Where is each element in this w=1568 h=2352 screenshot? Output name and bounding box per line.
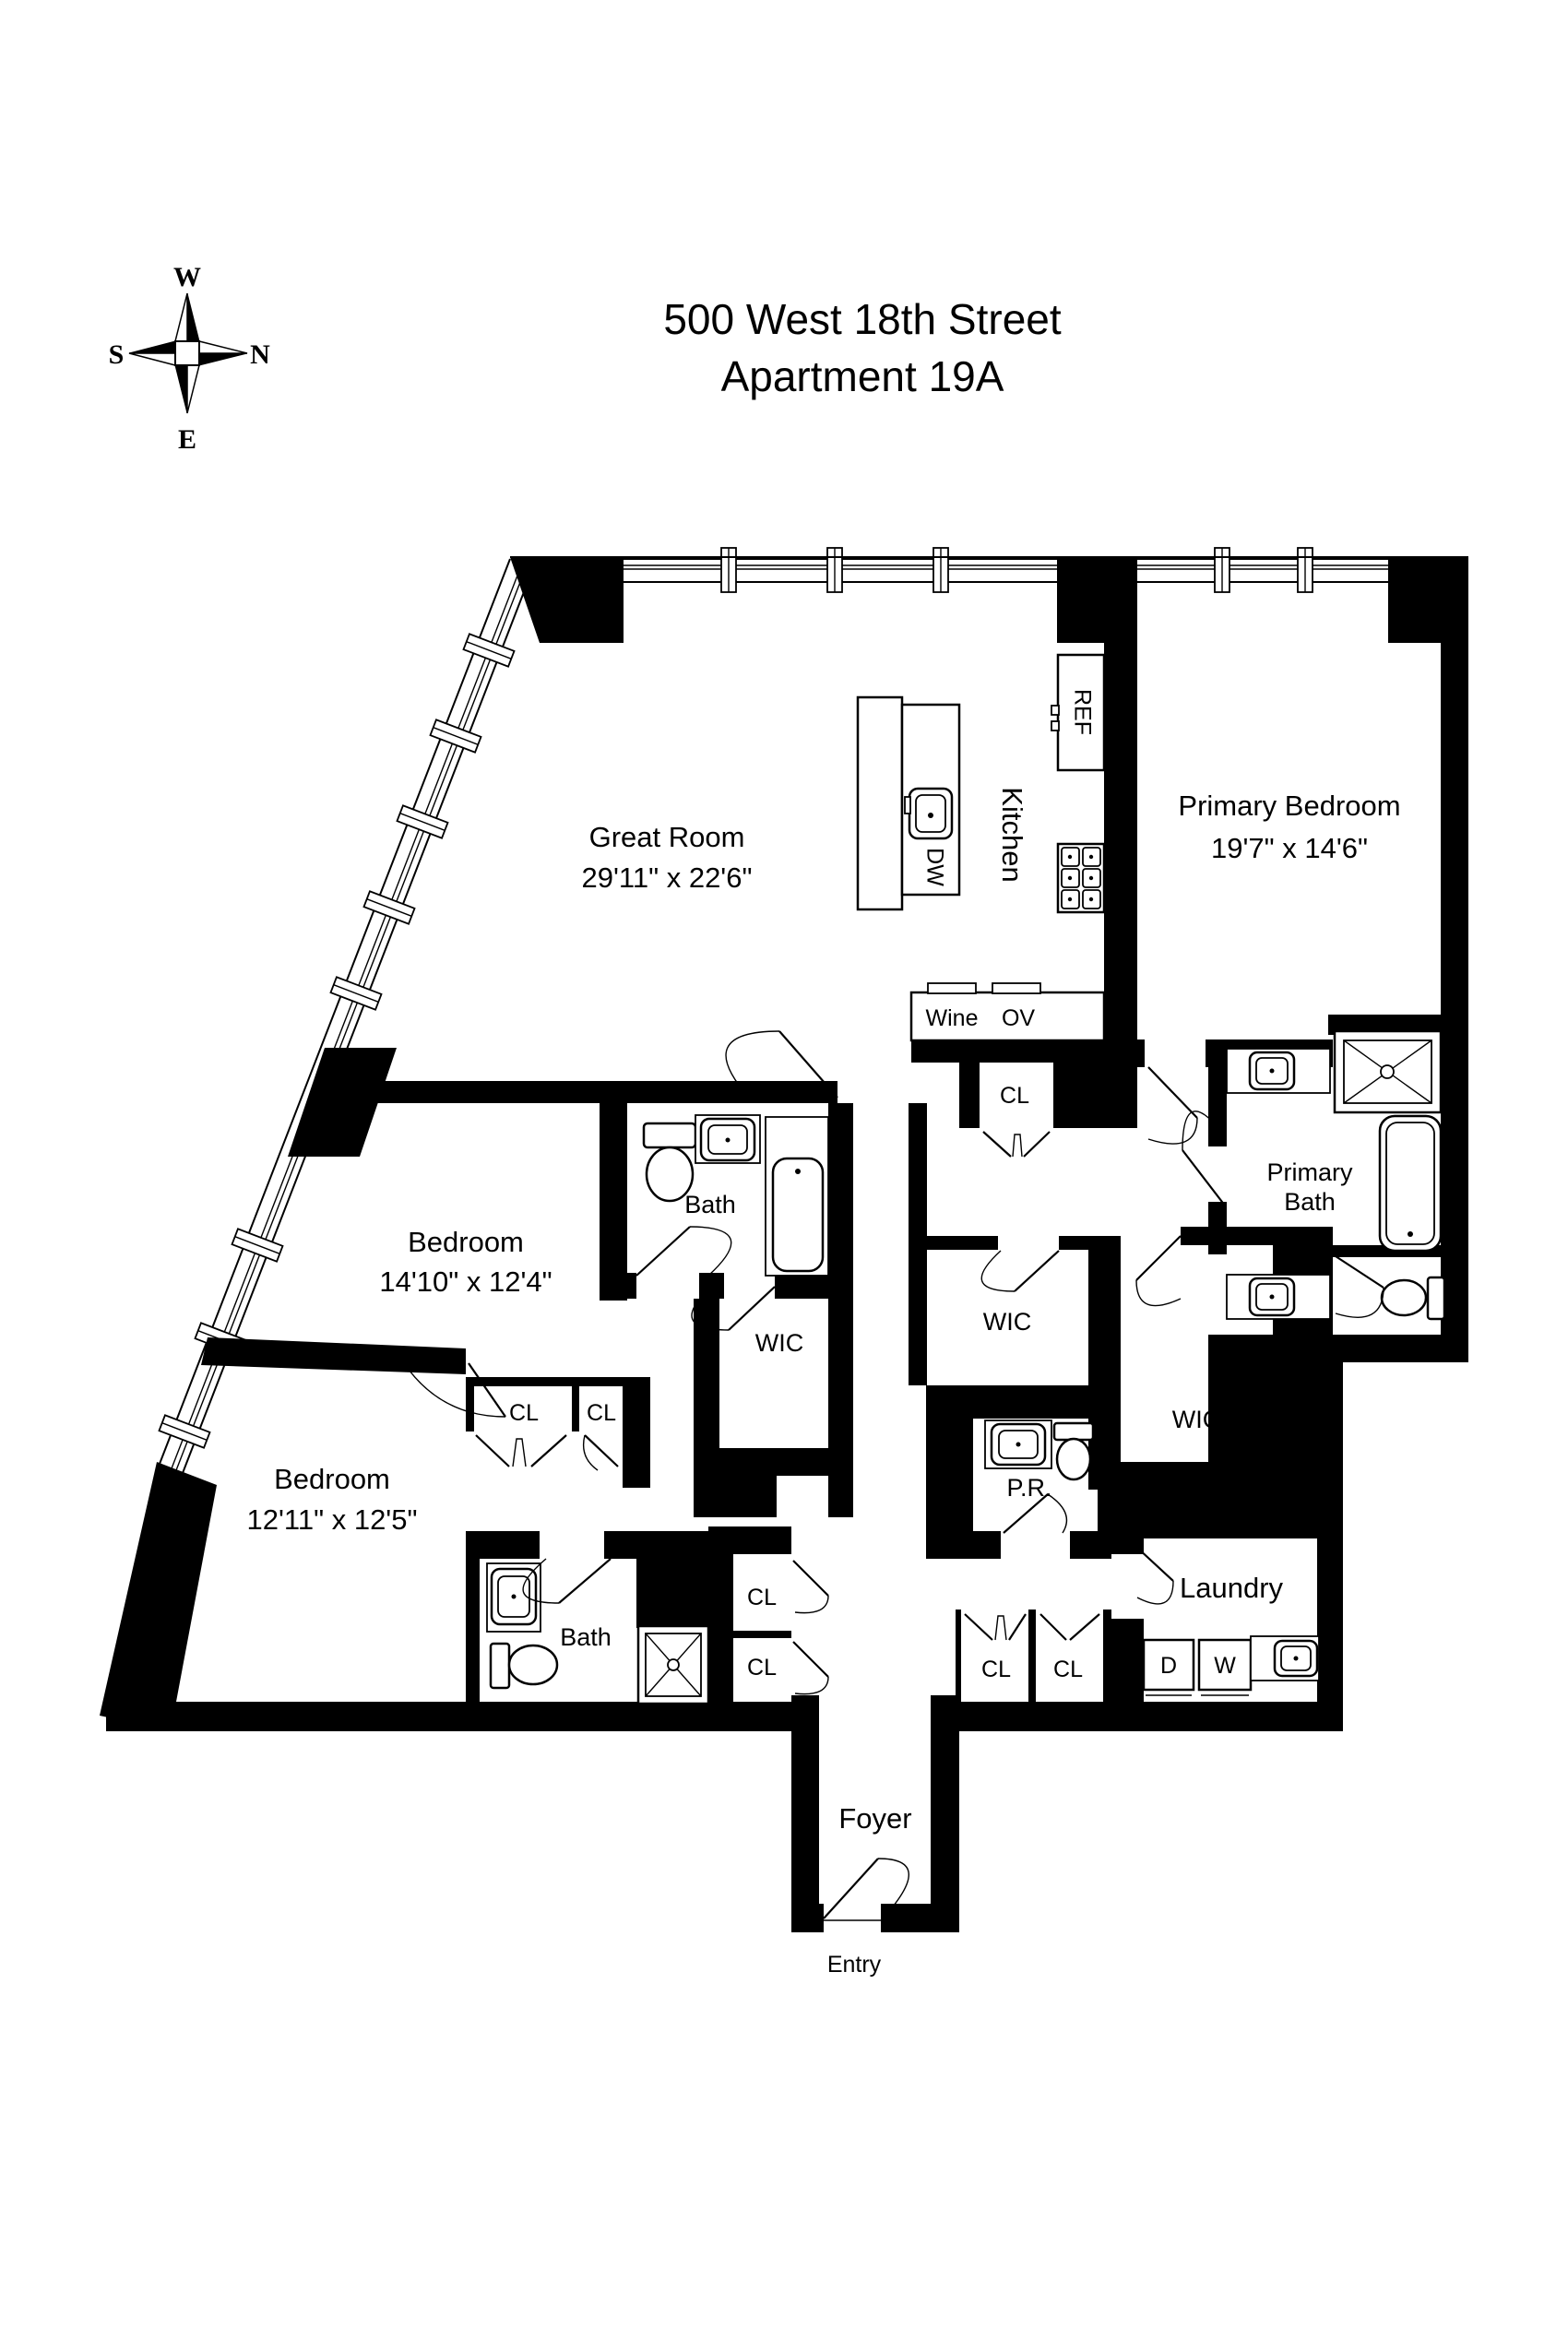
primary-bath-sink-top xyxy=(1227,1049,1330,1093)
great-room-dims: 29'11" x 22'6" xyxy=(582,861,753,894)
mid-bath-toilet xyxy=(644,1123,695,1201)
mid-bedroom-label: Bedroom xyxy=(408,1226,524,1258)
island-sink xyxy=(905,789,952,838)
hall-closet-right-label: CL xyxy=(1053,1657,1083,1682)
lower-bath-toilet xyxy=(491,1644,557,1688)
laundry-label: Laundry xyxy=(1180,1572,1284,1604)
mid-bath-door xyxy=(636,1227,731,1276)
laundry-sink xyxy=(1251,1636,1319,1681)
mid-closet-right-label: CL xyxy=(587,1400,616,1426)
compass-west-label: W xyxy=(173,262,201,292)
mid-wic-label: WIC xyxy=(755,1329,803,1357)
hall-wic-label: WIC xyxy=(983,1308,1031,1336)
refrigerator: REF xyxy=(1051,655,1104,770)
washer-label: W xyxy=(1214,1653,1236,1679)
top-window-wall xyxy=(541,559,1388,582)
primary-bedroom-door xyxy=(1148,1067,1197,1144)
stacked-closet-doors xyxy=(793,1561,828,1694)
compass-east-label: E xyxy=(178,424,196,455)
primary-wic-door xyxy=(1136,1236,1181,1306)
lower-bedroom-label: Bedroom xyxy=(274,1463,390,1495)
kitchen-label: Kitchen xyxy=(996,787,1028,882)
wine-oven-cabinet: Wine OV xyxy=(911,983,1104,1040)
mid-closet-left-label: CL xyxy=(509,1400,539,1426)
laundry-appliances: D W xyxy=(1144,1640,1251,1695)
mid-bedroom-dims: 14'10" x 12'4" xyxy=(379,1265,552,1298)
title-line-1: 500 West 18th Street xyxy=(663,295,1062,343)
powder-room-label: P.R. xyxy=(1006,1474,1051,1502)
powder-room-toilet xyxy=(1054,1423,1093,1479)
primary-bath-sink-bottom xyxy=(1227,1275,1330,1319)
dishwasher-label: DW xyxy=(921,848,947,886)
oven-label: OV xyxy=(1002,1005,1035,1031)
stacked-closet-lower-label: CL xyxy=(747,1655,777,1681)
lower-bath-shower xyxy=(638,1626,708,1704)
powder-room-sink xyxy=(985,1420,1051,1468)
mid-closet-doors xyxy=(476,1435,618,1470)
entry-label: Entry xyxy=(827,1952,882,1978)
foyer-label: Foyer xyxy=(838,1802,911,1835)
wine-cooler-label: Wine xyxy=(926,1005,979,1031)
primary-toilet xyxy=(1382,1277,1444,1319)
title-line-2: Apartment 19A xyxy=(721,352,1004,400)
compass-south-label: S xyxy=(109,339,125,370)
stacked-closet-upper-label: CL xyxy=(747,1585,777,1610)
primary-bedroom-dims: 19'7" x 14'6" xyxy=(1211,832,1368,864)
primary-bath-label-line2: Bath xyxy=(1284,1188,1336,1216)
primary-bedroom-label: Primary Bedroom xyxy=(1178,790,1400,822)
laundry-door xyxy=(1137,1548,1173,1604)
primary-bath-label-line1: Primary xyxy=(1267,1158,1353,1186)
water-closet-door xyxy=(1336,1256,1384,1317)
primary-shower xyxy=(1335,1031,1441,1112)
window-mullions-top xyxy=(721,548,1313,592)
primary-wic-label: WIC xyxy=(1172,1406,1220,1433)
lower-bedroom-dims: 12'11" x 12'5" xyxy=(247,1503,418,1536)
dryer-label: D xyxy=(1160,1653,1177,1679)
plan-title: 500 West 18th Street Apartment 19A xyxy=(663,295,1062,400)
mid-bath-label: Bath xyxy=(684,1191,736,1218)
hall-closet-left-label: CL xyxy=(981,1657,1011,1682)
kitchen-closet-doors xyxy=(983,1132,1050,1157)
lower-bath-sink xyxy=(487,1563,540,1632)
hall-wic-door xyxy=(981,1251,1059,1291)
compass-north-label: N xyxy=(250,339,270,370)
floor-plan-svg: 500 West 18th Street Apartment 19A W S N… xyxy=(0,0,1568,2352)
compass-rose: W S N E xyxy=(109,262,271,455)
great-room-label: Great Room xyxy=(589,821,745,853)
mid-bath-tub xyxy=(766,1117,828,1276)
primary-tub xyxy=(1380,1116,1441,1251)
refrigerator-label: REF xyxy=(1069,689,1095,735)
floor-plan-page: 500 West 18th Street Apartment 19A W S N… xyxy=(0,0,1568,2352)
cooktop xyxy=(1058,844,1104,912)
mid-bath-sink xyxy=(695,1115,760,1163)
kitchen-closet-label: CL xyxy=(1000,1083,1029,1109)
lower-bath-label: Bath xyxy=(560,1623,612,1651)
